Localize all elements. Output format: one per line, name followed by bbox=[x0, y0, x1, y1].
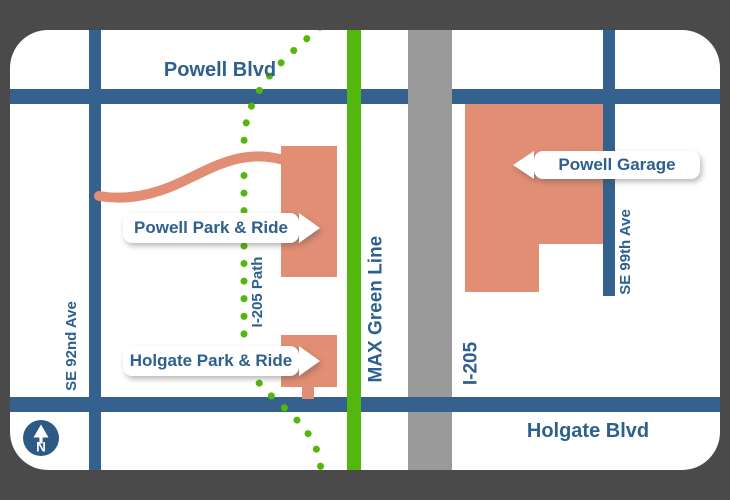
powell-blvd-label: Powell Blvd bbox=[120, 59, 320, 82]
powell-park-ride-callout-label: Powell Park & Ride bbox=[123, 213, 299, 243]
se-92nd-ave-label: SE 92nd Ave bbox=[63, 301, 81, 391]
callout-arrow-right-icon bbox=[299, 346, 320, 376]
access-road-curve bbox=[99, 156, 284, 197]
north-arrow-icon: N bbox=[23, 420, 59, 456]
powell-park-ride-callout: Powell Park & Ride bbox=[123, 213, 299, 243]
compass-rose: N bbox=[23, 420, 59, 456]
i205-label: I-205 bbox=[461, 339, 482, 389]
holgate-park-ride-driveway bbox=[302, 385, 314, 399]
holgate-park-ride-callout: Holgate Park & Ride bbox=[123, 346, 299, 376]
powell-park-ride-building bbox=[281, 146, 337, 277]
max-green-line-track bbox=[347, 30, 361, 470]
transit-map: Powell Blvd Holgate Blvd SE 92nd Ave SE … bbox=[10, 30, 720, 470]
holgate-blvd-label: Holgate Blvd bbox=[488, 420, 688, 443]
max-green-line-label: MAX Green Line bbox=[366, 243, 387, 383]
i205-path-label: I-205 Path bbox=[249, 252, 267, 332]
holgate-park-ride-callout-label: Holgate Park & Ride bbox=[123, 346, 299, 376]
callout-arrow-right-icon bbox=[299, 213, 320, 243]
compass-north-label: N bbox=[36, 440, 46, 455]
powell-garage-callout: Powell Garage bbox=[534, 151, 700, 179]
callout-arrow-left-icon bbox=[513, 151, 534, 179]
se-99th-ave-label: SE 99th Ave bbox=[617, 207, 635, 297]
powell-garage-callout-label: Powell Garage bbox=[534, 151, 700, 179]
